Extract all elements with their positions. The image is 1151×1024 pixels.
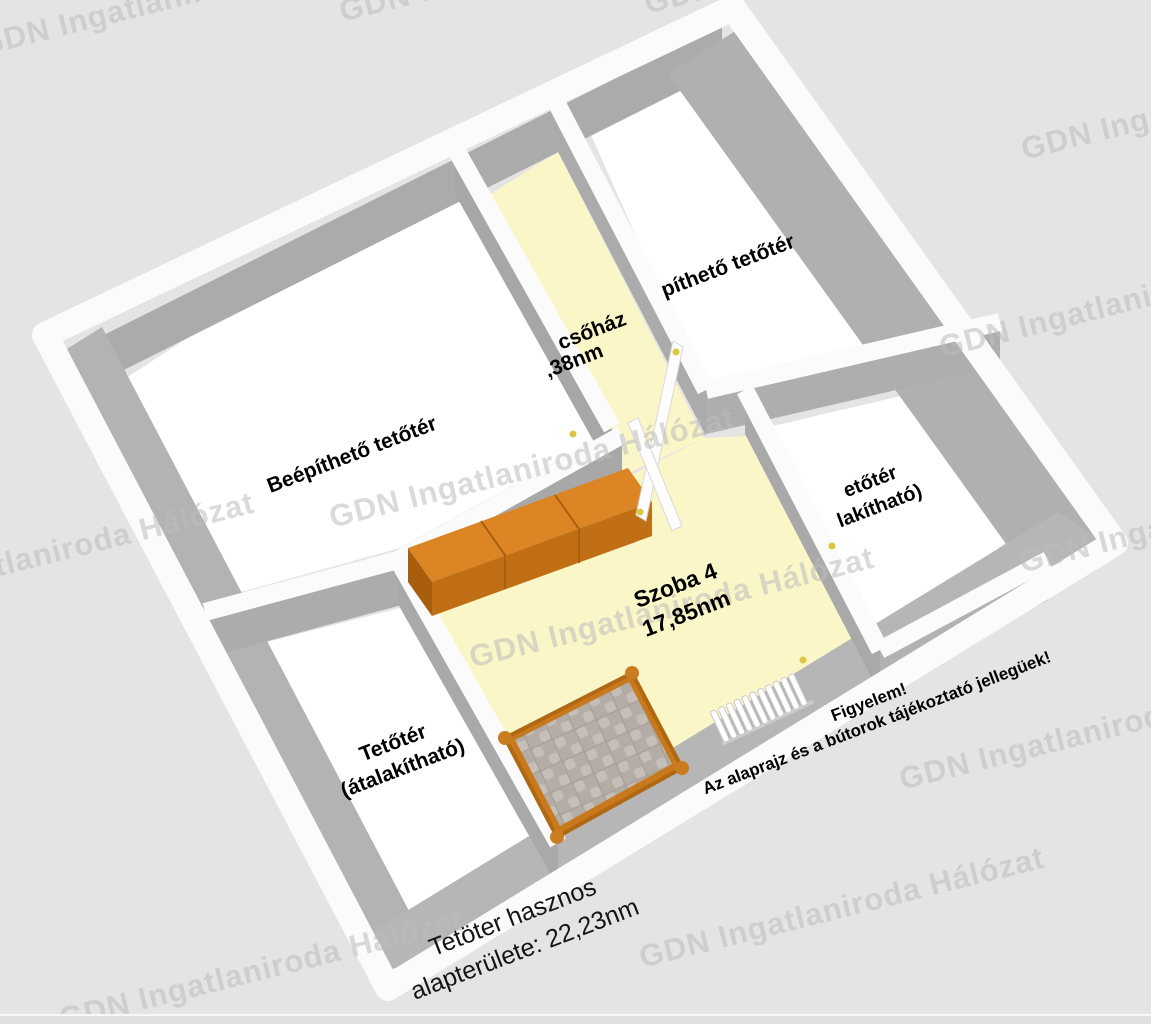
door-handle-dot	[673, 349, 680, 356]
floorplan-drawing	[0, 0, 1151, 1024]
bed-knob	[675, 761, 689, 775]
door-handle-dot	[829, 543, 836, 550]
door-handle-dot	[800, 657, 807, 664]
bed-knob	[625, 666, 639, 680]
bottom-border-strip	[0, 1014, 1151, 1024]
door-handle-dot	[637, 509, 644, 516]
bed-knob	[550, 830, 564, 844]
bed-knob	[498, 731, 512, 745]
door-handle-dot	[570, 431, 577, 438]
floorplan-page: GDN Ingatlaniroda Hálózat GDN Ingatlanir…	[0, 0, 1151, 1024]
